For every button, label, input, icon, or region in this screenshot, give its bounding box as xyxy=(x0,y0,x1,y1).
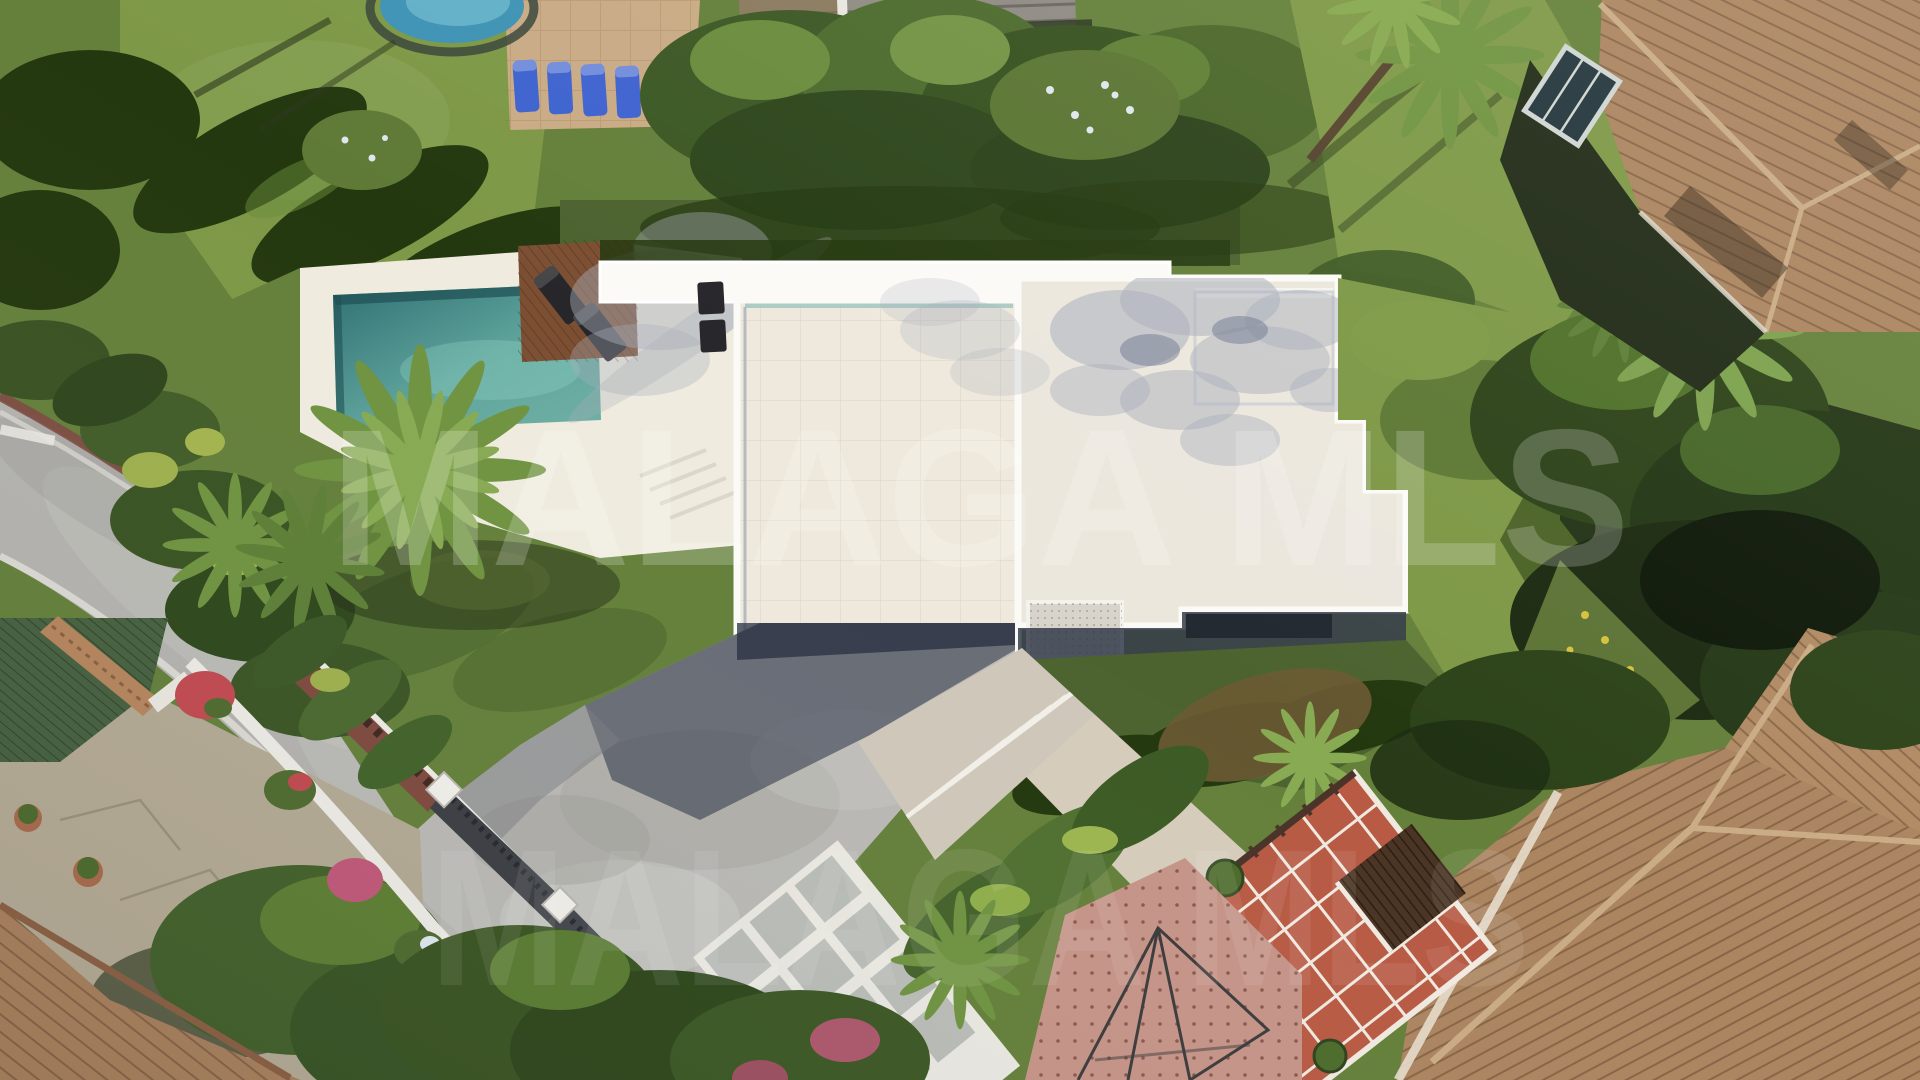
aerial-photo-canvas: MALAGA MLS MALAGA MLS xyxy=(0,0,1920,1080)
watermark-text: MALAGA MLS xyxy=(330,389,1630,607)
aerial-photo: MALAGA MLS MALAGA MLS xyxy=(0,0,1920,1080)
watermark-text-faint: MALAGA MLS xyxy=(430,809,1530,1027)
